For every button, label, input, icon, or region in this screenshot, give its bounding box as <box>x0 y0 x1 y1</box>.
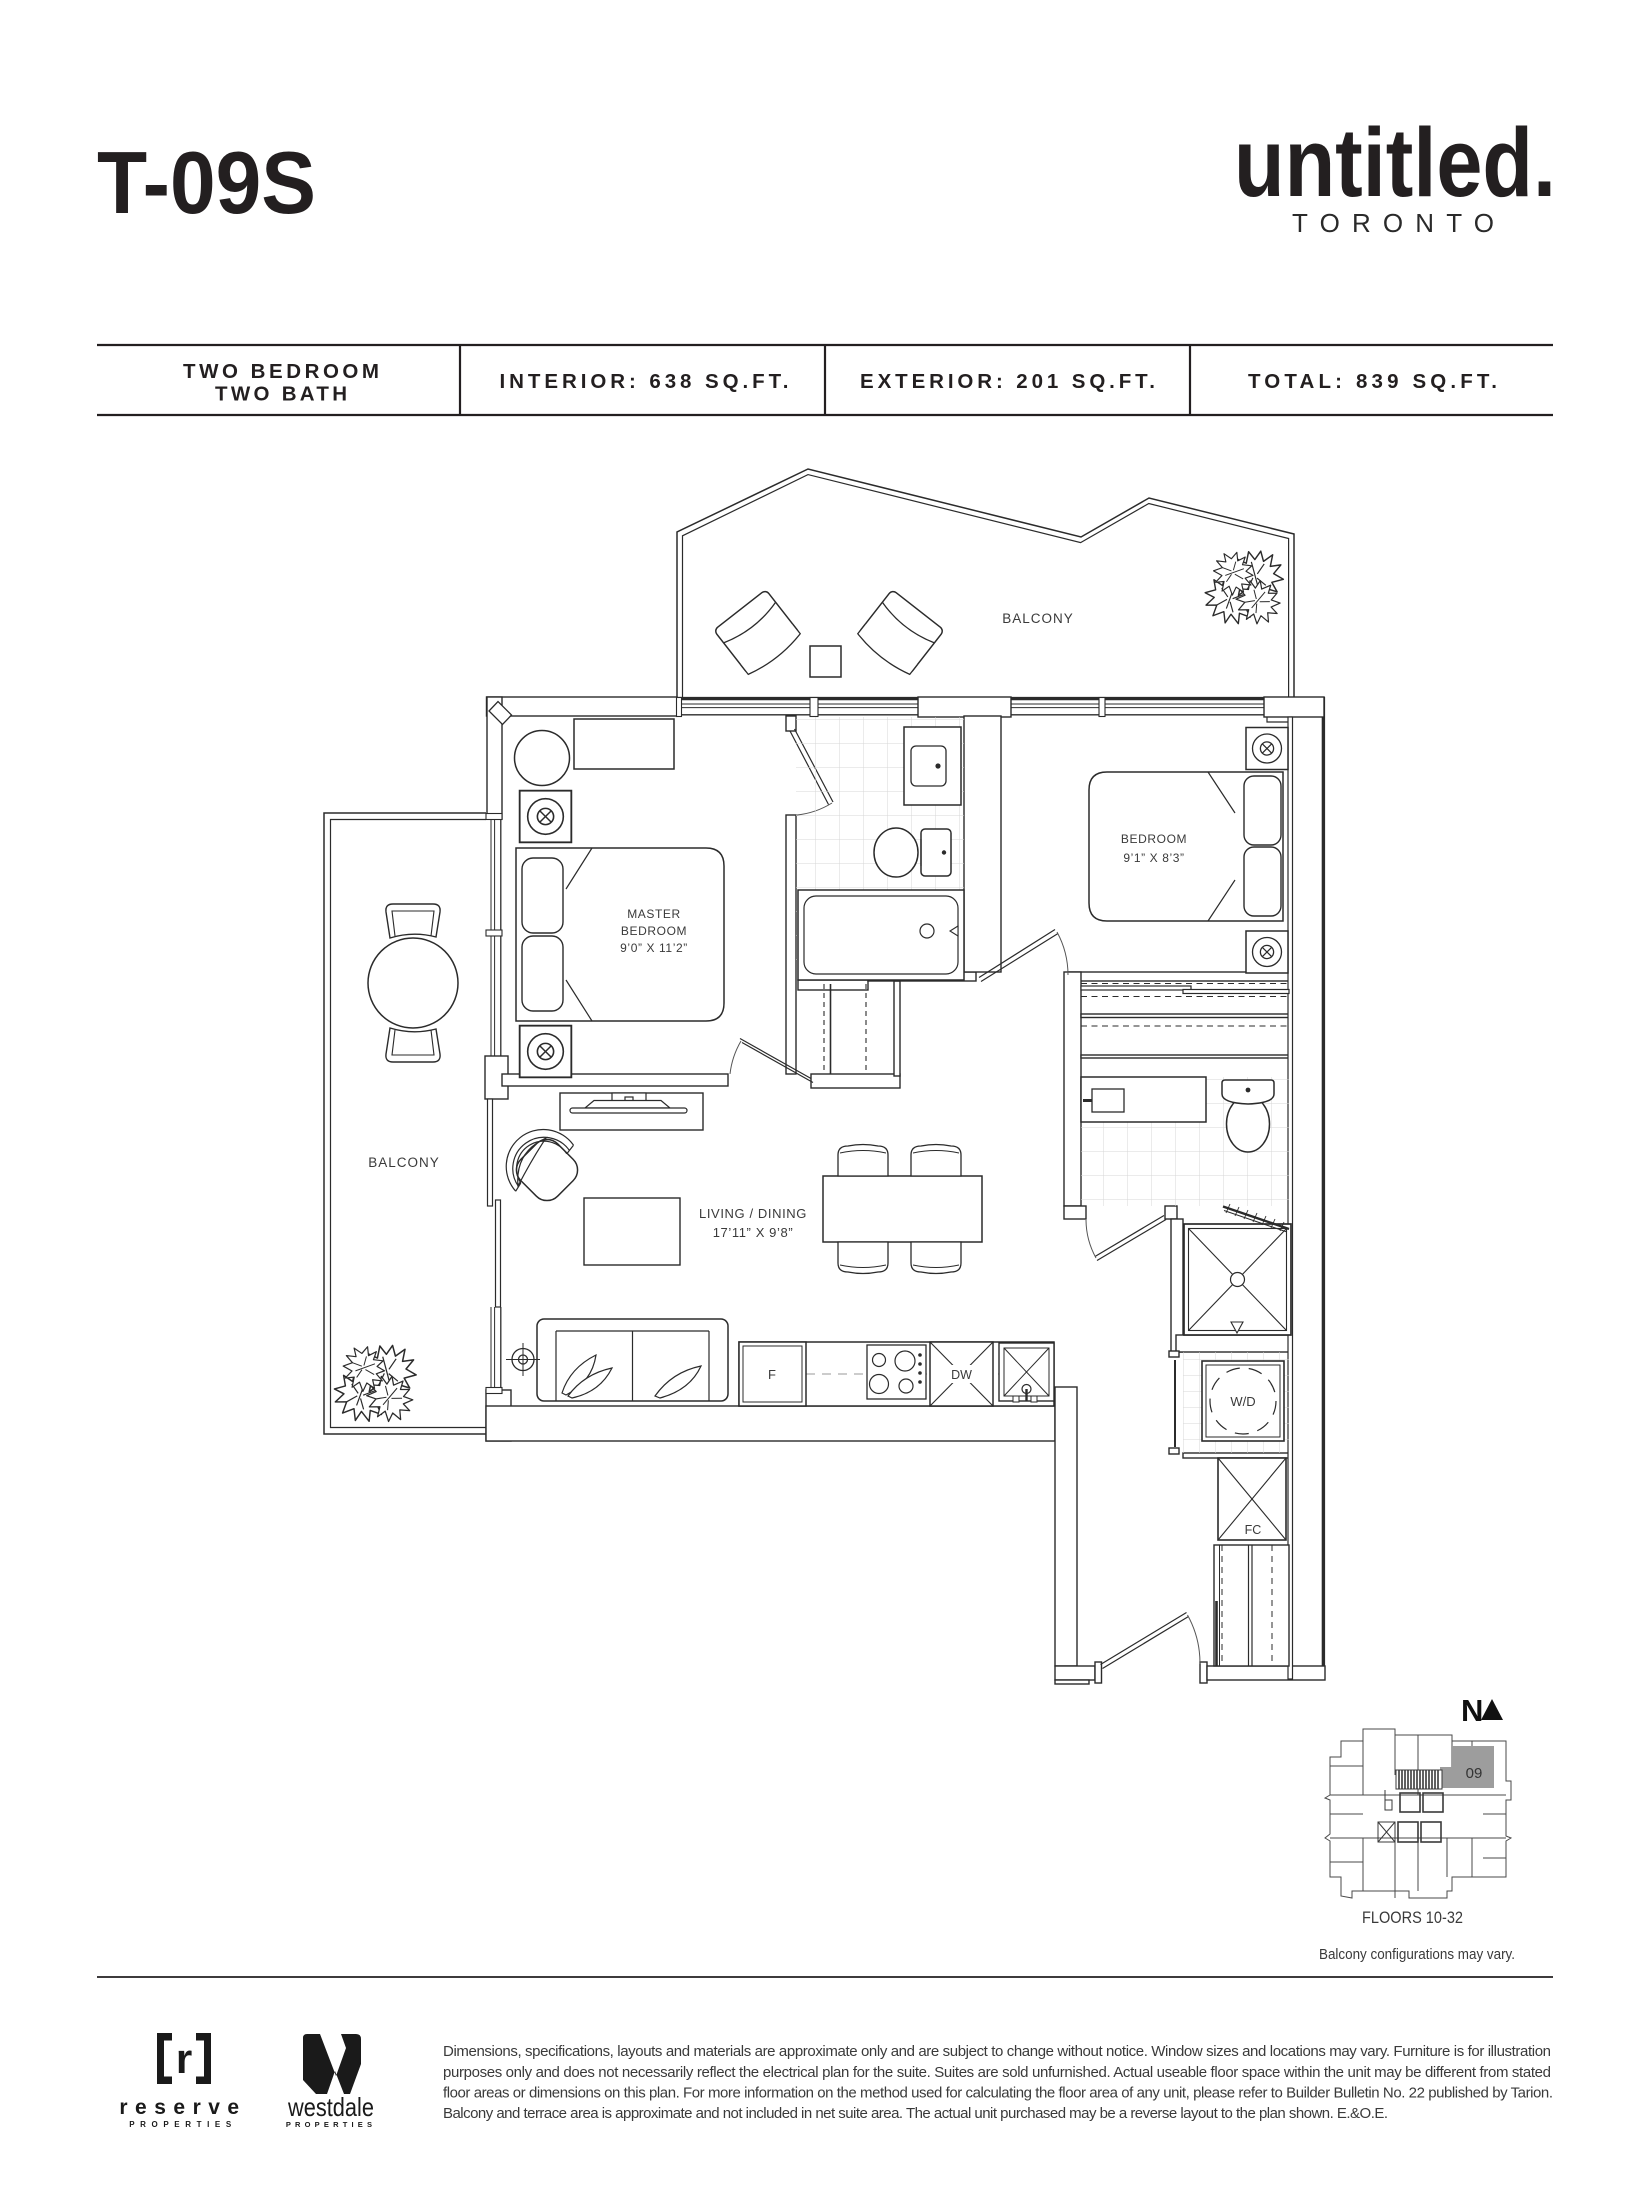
svg-text:floor areas or dimensions on t: floor areas or dimensions on this plan. … <box>443 2085 1553 2102</box>
svg-text:Balcony and terrace area is ap: Balcony and terrace area is approximate … <box>443 2105 1388 2122</box>
svg-text:purposes only and does not nec: purposes only and does not necessarily r… <box>443 2064 1551 2081</box>
svg-text:Dimensions, specifications, la: Dimensions, specifications, layouts and … <box>443 2043 1551 2060</box>
